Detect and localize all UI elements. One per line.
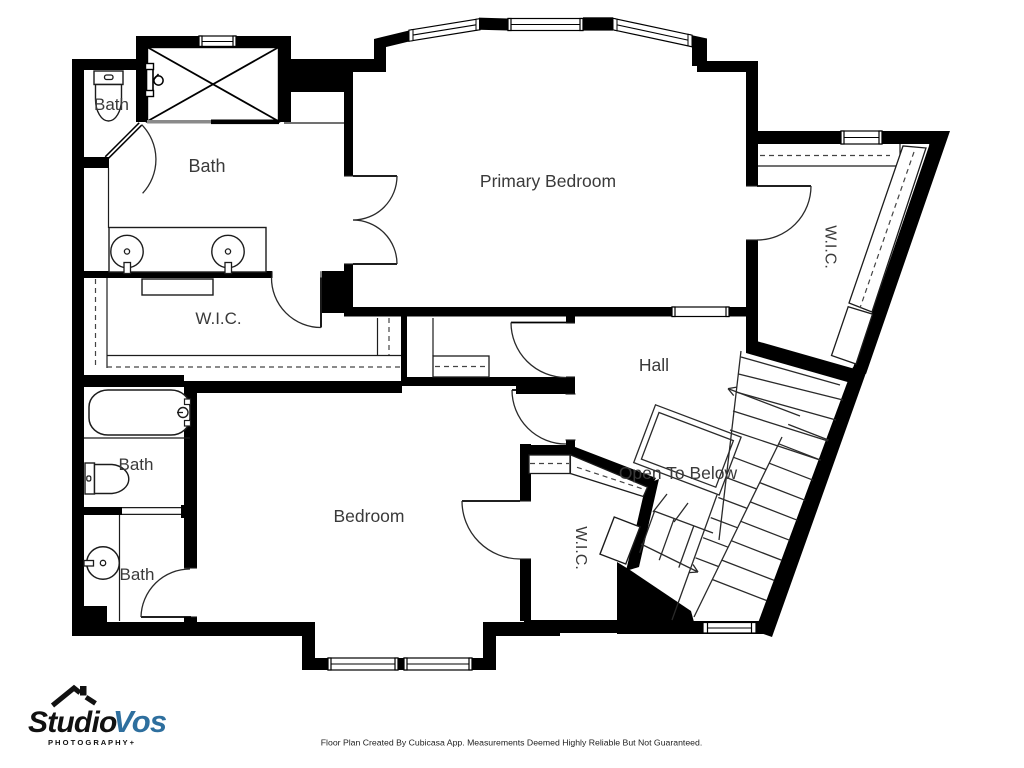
svg-text:Primary Bedroom: Primary Bedroom [480, 171, 616, 191]
svg-text:W.I.C.: W.I.C. [822, 225, 839, 269]
svg-text:Open To Below: Open To Below [619, 463, 738, 483]
svg-text:Vos: Vos [113, 704, 167, 739]
svg-text:Bath: Bath [188, 156, 225, 176]
svg-text:Studio: Studio [28, 706, 117, 739]
svg-text:Bath: Bath [94, 95, 129, 114]
svg-text:Bath: Bath [119, 455, 154, 474]
svg-text:P H O T O G R A P H Y +: P H O T O G R A P H Y + [48, 738, 135, 747]
svg-text:W.I.C.: W.I.C. [195, 309, 241, 328]
svg-text:Bedroom: Bedroom [333, 506, 404, 526]
svg-text:Bath: Bath [120, 565, 155, 584]
svg-text:W.I.C.: W.I.C. [572, 526, 589, 570]
svg-text:Floor Plan Created By Cubicasa: Floor Plan Created By Cubicasa App. Meas… [321, 738, 702, 748]
svg-text:Hall: Hall [639, 355, 669, 375]
